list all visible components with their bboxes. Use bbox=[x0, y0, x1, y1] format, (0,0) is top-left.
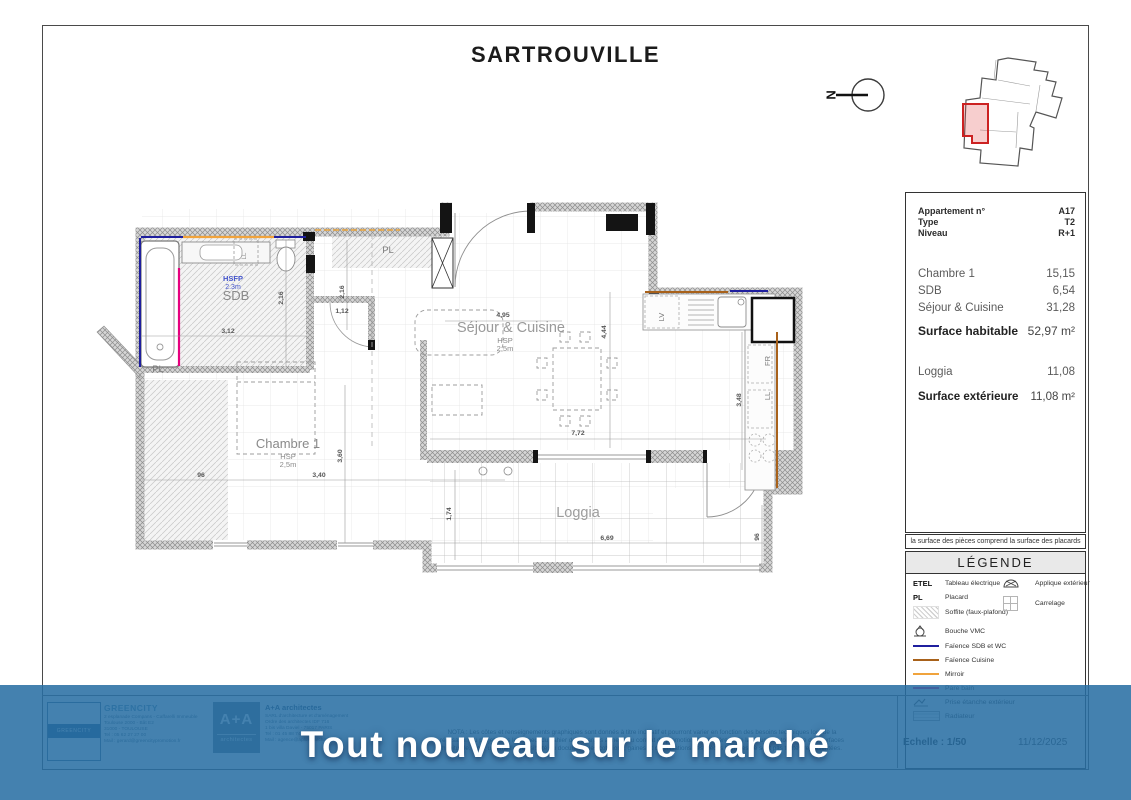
svg-text:3,60: 3,60 bbox=[337, 449, 344, 462]
sejour-label: Séjour & Cuisine bbox=[457, 320, 565, 336]
room-area-row: Chambre 115,15 bbox=[918, 266, 1075, 283]
applique-icon bbox=[1003, 578, 1030, 588]
legend-item-etel: ETELTableau électrique bbox=[913, 577, 1000, 589]
surface-habitable-row: Surface habitable 52,97 m² bbox=[918, 323, 1075, 339]
type-value: T2 bbox=[1064, 217, 1075, 228]
svg-text:3,40: 3,40 bbox=[312, 472, 325, 479]
legend-item-carrelage: Carrelage bbox=[1003, 597, 1065, 609]
miroir-swatch bbox=[913, 673, 939, 675]
legend-item-miroir: Mirroir bbox=[913, 668, 964, 680]
svg-text:3,48: 3,48 bbox=[736, 393, 743, 406]
svg-text:2,16: 2,16 bbox=[339, 285, 346, 298]
level-label: Niveau bbox=[918, 228, 948, 239]
legend-item-placard: PLPlacard bbox=[913, 591, 968, 603]
apartment-number-label: Appartement n° bbox=[918, 206, 985, 217]
svg-text:6,69: 6,69 bbox=[600, 535, 613, 542]
svg-text:1,12: 1,12 bbox=[335, 308, 348, 315]
svg-text:4,95: 4,95 bbox=[496, 312, 509, 319]
vanity bbox=[182, 242, 270, 263]
key-plan bbox=[963, 58, 1062, 166]
promo-banner-text: Tout nouveau sur le marché bbox=[0, 724, 1131, 766]
faience-cuisine-swatch bbox=[913, 659, 939, 661]
loggia-area-row: Loggia11,08 bbox=[918, 366, 1075, 378]
svg-text:N: N bbox=[824, 90, 839, 99]
loggia-label: Loggia bbox=[556, 505, 600, 521]
angled-wall bbox=[97, 326, 140, 378]
corner-column bbox=[752, 298, 794, 342]
room-area-row: Séjour & Cuisine31,28 bbox=[918, 300, 1075, 317]
ll-cuisine-label: LL bbox=[763, 392, 772, 400]
apartment-number-value: A17 bbox=[1058, 206, 1075, 217]
svg-text:3,12: 3,12 bbox=[221, 328, 234, 335]
room-area-row: SDB6,54 bbox=[918, 283, 1075, 300]
sdb-label: SDB bbox=[223, 288, 250, 303]
level-value: R+1 bbox=[1058, 228, 1075, 239]
svg-text:4,44: 4,44 bbox=[601, 325, 608, 338]
type-label: Type bbox=[918, 217, 938, 228]
sdb-height-label: HSFP bbox=[223, 274, 243, 283]
svg-text:7,72: 7,72 bbox=[571, 430, 584, 437]
surface-footnote: la surface des pièces comprend la surfac… bbox=[905, 534, 1086, 549]
etel-box bbox=[432, 238, 453, 288]
legend-item-vmc: Bouche VMC bbox=[913, 625, 985, 637]
north-arrow-icon: N bbox=[824, 79, 885, 111]
toilet bbox=[276, 240, 295, 271]
legend-item-faience-sdb: Faïence SDB et WC bbox=[913, 640, 1006, 652]
apartment-info-panel: Appartement n°A17 TypeT2 NiveauR+1 Chamb… bbox=[905, 192, 1086, 533]
placard-top-label: PL bbox=[382, 245, 394, 256]
svg-text:96: 96 bbox=[754, 533, 761, 541]
vmc-icon bbox=[913, 625, 940, 637]
legend-item-soffite: Soffite (faux-plafond) bbox=[913, 606, 1008, 618]
svg-text:2,16: 2,16 bbox=[278, 291, 285, 304]
legend-title: LÉGENDE bbox=[906, 552, 1085, 574]
legend-item-faience-cuisine: Faïence Cuisine bbox=[913, 654, 994, 666]
soffite-swatch bbox=[913, 606, 939, 619]
svg-text:2,5m: 2,5m bbox=[280, 460, 297, 469]
placard-left-label: PL bbox=[152, 364, 164, 375]
chambre-label: Chambre 1 bbox=[256, 436, 320, 451]
svg-text:2,5m: 2,5m bbox=[497, 344, 514, 353]
svg-text:1,74: 1,74 bbox=[446, 507, 453, 520]
legend-item-applique: Applique extérieur bbox=[1003, 577, 1090, 589]
lv-label: LV bbox=[657, 313, 666, 322]
carrelage-swatch bbox=[1003, 596, 1018, 611]
svg-text:LL: LL bbox=[242, 252, 248, 259]
soffite-placard-gauche bbox=[142, 380, 228, 543]
bathtub bbox=[141, 241, 179, 367]
surface-exterieure-row: Surface extérieure 11,08 m² bbox=[918, 389, 1075, 405]
faience-sdb-swatch bbox=[913, 645, 939, 647]
svg-text:96: 96 bbox=[197, 472, 205, 479]
fr-label: FR bbox=[763, 355, 772, 366]
plan-sheet: SARTROUVILLE bbox=[0, 0, 1131, 800]
